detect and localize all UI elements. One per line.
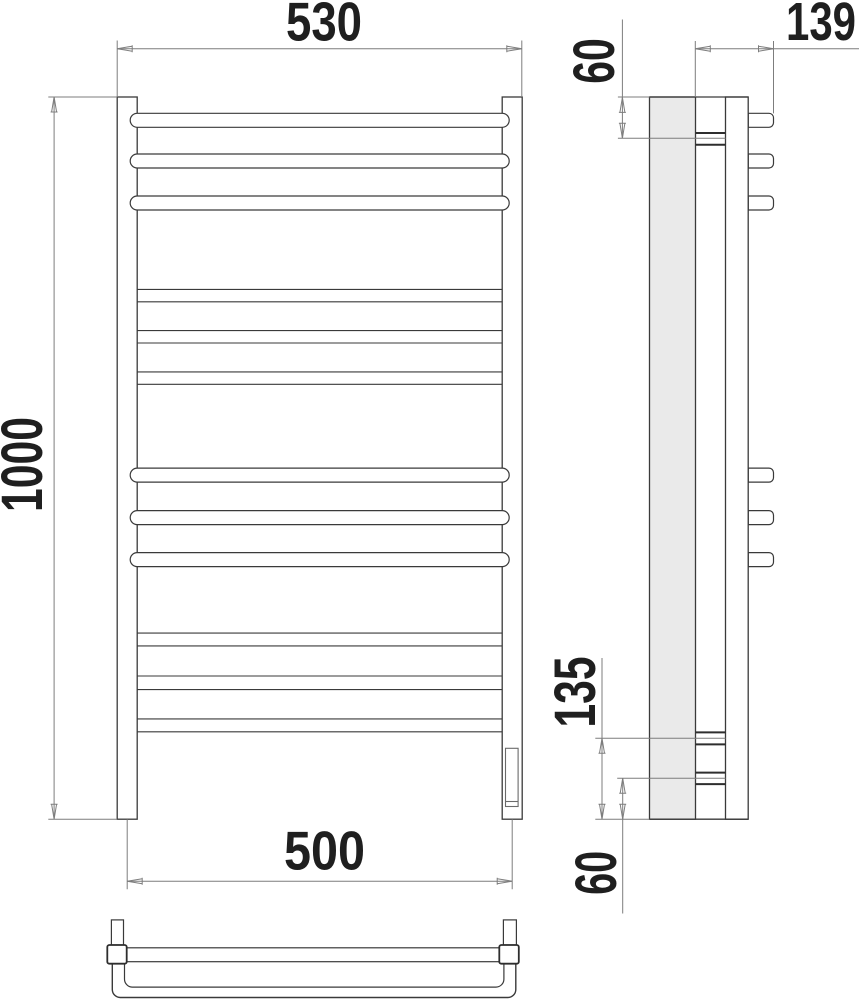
svg-text:60: 60 bbox=[564, 851, 629, 895]
svg-text:135: 135 bbox=[543, 657, 608, 728]
svg-text:139: 139 bbox=[786, 0, 856, 52]
svg-text:530: 530 bbox=[286, 0, 362, 53]
svg-text:500: 500 bbox=[284, 820, 365, 882]
svg-text:60: 60 bbox=[562, 38, 627, 84]
svg-text:1000: 1000 bbox=[0, 417, 55, 512]
